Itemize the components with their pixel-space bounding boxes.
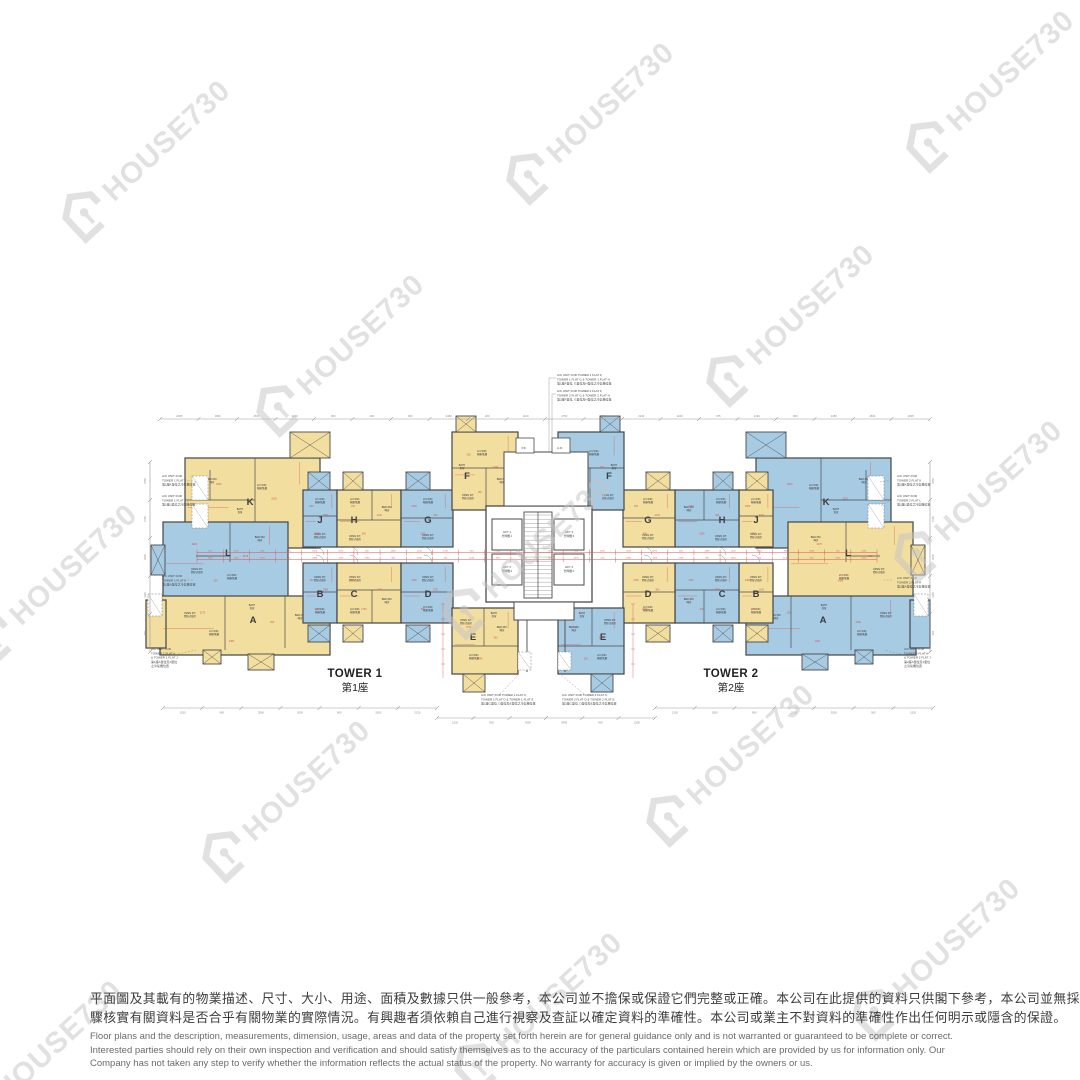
tower-2-unit-E: OPEN KIT.開放式廚房BED RM.睡房LIV./DIN.客廳/飯廳BAT… [558,608,624,692]
svg-text:客廳/飯廳: 客廳/飯廳 [477,452,488,456]
house730-logo-icon [57,185,111,239]
svg-text:K: K [823,497,830,508]
svg-text:C: C [351,589,358,600]
svg-text:客廳/飯廳: 客廳/飯廳 [716,610,727,614]
svg-text:2020: 2020 [861,557,867,559]
tower-2: LIV./DIN.客廳/飯廳BED RM.睡房BATH浴室OPEN KIT.開放… [558,416,930,694]
svg-text:1750: 1750 [443,550,449,552]
svg-text:睡房: 睡房 [258,538,263,542]
svg-text:2480: 2480 [312,557,318,559]
svg-text:第1座C單位, D單位及E單位之冷氣機位置: 第1座C單位, D單位及E單位之冷氣機位置 [481,701,536,706]
svg-text:1500: 1500 [600,550,606,552]
svg-text:900: 900 [337,710,342,714]
svg-text:900: 900 [489,720,494,724]
svg-text:1800: 1800 [869,414,875,418]
house730-watermark: HOUSE730 [57,68,237,240]
svg-text:3500: 3500 [831,710,837,714]
svg-text:1100: 1100 [931,592,935,598]
svg-text:2020: 2020 [271,497,277,500]
tower-1: LIV./DIN.客廳/飯廳BED RM.睡房BATH浴室OPEN KIT.開放… [146,416,518,694]
svg-text:之冷氣機位置: 之冷氣機位置 [151,663,169,668]
svg-text:升降機 4: 升降機 4 [564,569,575,573]
svg-text:1750: 1750 [361,608,367,611]
svg-text:2000: 2000 [931,554,935,560]
svg-text:2480: 2480 [745,579,751,582]
svg-text:開放式廚房: 開放式廚房 [715,537,728,541]
svg-text:3150: 3150 [143,478,147,484]
svg-text:L: L [845,548,851,559]
svg-text:第2座A單位及J單位: 第2座A單位及J單位 [904,659,930,664]
svg-text:900: 900 [143,630,147,635]
house730-watermark-text: HOUSE730 [680,678,821,812]
svg-text:3500: 3500 [258,710,264,714]
tower-1-unit-C: LIV./DIN.客廳/飯廳BED RM.睡房OPEN KIT.開放式廚房248… [337,563,401,642]
svg-text:2340: 2340 [731,557,737,559]
svg-text:200: 200 [370,414,375,418]
svg-text:2130: 2130 [377,514,383,517]
floor-plan-page: LIV./DIN.客廳/飯廳BED RM.睡房BATH浴室OPEN KIT.開放… [0,0,1080,1080]
svg-text:1500: 1500 [712,710,718,714]
svg-text:客廳/飯廳: 客廳/飯廳 [423,500,434,504]
svg-text:浴室: 浴室 [580,614,585,618]
svg-text:3275: 3275 [243,555,249,558]
svg-text:客廳/飯廳: 客廳/飯廳 [315,500,326,504]
svg-text:2020: 2020 [312,550,318,552]
svg-text:D: D [645,589,652,600]
svg-text:1750: 1750 [433,589,439,592]
svg-text:3275: 3275 [200,612,206,615]
svg-text:2130: 2130 [469,557,475,559]
disclaimer-english: Floor plans and the description, measure… [90,1030,1005,1071]
svg-text:2020: 2020 [192,543,198,546]
svg-text:200: 200 [869,555,874,558]
tower-1-unit-G: LIV./DIN.客廳/飯廳OPEN KIT.開放式廚房23401502130G [401,472,453,547]
svg-text:開放式廚房: 開放式廚房 [460,621,473,625]
house730-logo-icon [197,825,251,879]
svg-text:2130: 2130 [688,505,694,508]
svg-text:客廳/飯廳: 客廳/飯廳 [350,500,361,504]
svg-text:B: B [317,589,324,600]
svg-text:2340: 2340 [495,550,501,552]
svg-text:300: 300 [467,453,472,456]
svg-text:1750: 1750 [633,579,639,582]
svg-text:睡房: 睡房 [385,508,390,512]
svg-text:H.R.: H.R. [557,446,562,450]
svg-text:客廳/飯廳: 客廳/飯廳 [716,500,727,504]
svg-text:2480: 2480 [391,550,397,552]
annotation-top_2: A/C UNIT FOR TOWER 2 FLAT F,TOWER 2 FLAT… [557,389,612,402]
svg-text:第2座: 第2座 [718,681,745,694]
svg-text:2020: 2020 [315,532,321,535]
svg-text:LIFT 4: LIFT 4 [565,565,573,569]
tower-1-unit-H: LIV./DIN.客廳/飯廳BED RM.睡房OPEN KIT.開放式廚房150… [337,472,401,547]
svg-text:開放式廚房: 開放式廚房 [462,496,475,500]
house730-watermark: HOUSE730 [901,0,1080,169]
svg-text:睡房: 睡房 [862,480,867,484]
svg-text:睡房: 睡房 [385,600,390,604]
svg-text:F: F [606,471,612,482]
svg-text:3275: 3275 [338,550,344,552]
svg-text:浴室: 浴室 [238,510,243,514]
svg-text:2480: 2480 [626,557,632,559]
svg-text:睡房: 睡房 [298,616,303,620]
svg-text:H: H [719,515,726,526]
svg-text:375: 375 [716,414,721,418]
svg-text:開放式廚房: 開放式廚房 [314,578,327,582]
svg-text:900: 900 [601,414,606,418]
svg-text:200: 200 [287,557,291,559]
svg-text:開放式廚房: 開放式廚房 [422,578,435,582]
svg-text:3275: 3275 [751,532,757,535]
svg-text:第2座C單位, D單位及E單位之冷氣機位置: 第2座C單位, D單位及E單位之冷氣機位置 [562,701,617,706]
house730-watermark-text: HOUSE730 [740,238,881,372]
svg-text:D: D [425,589,432,600]
svg-text:H: H [351,515,358,526]
svg-text:客廳/飯廳: 客廳/飯廳 [350,610,361,614]
svg-text:1750: 1750 [757,550,763,552]
svg-text:900: 900 [362,532,367,535]
svg-text:第1座A單位之冷氣機位置: 第1座A單位之冷氣機位置 [162,582,196,587]
house730-watermark-text: HOUSE730 [928,414,1069,548]
svg-text:900: 900 [331,414,336,418]
svg-text:150: 150 [634,505,639,508]
tower-2-unit-C: LIV./DIN.客廳/飯廳BED RM.睡房OPEN KIT.開放式廚房110… [675,563,739,642]
svg-text:1500: 1500 [699,532,705,535]
svg-text:2480: 2480 [705,550,711,552]
svg-text:E: E [600,632,606,643]
svg-text:2340: 2340 [809,550,815,552]
svg-text:浴室: 浴室 [834,510,839,514]
svg-text:2000: 2000 [297,710,303,714]
svg-text:150: 150 [757,557,761,559]
svg-text:2480: 2480 [831,414,837,418]
svg-text:2130: 2130 [414,710,420,714]
svg-text:開放式廚房: 開放式廚房 [642,536,655,540]
svg-text:1500: 1500 [745,505,751,508]
svg-text:1520: 1520 [452,720,458,724]
annotation-right_k: A/C UNIT FORTOWER 2 FLAT K第2座K單位之冷氣機位置 [897,474,931,487]
tower-2-unit-G: LIV./DIN.客廳/飯廳OPEN KIT.開放式廚房1502130900G [623,472,675,547]
tower-2-unit-J: LIV./DIN.客廳/飯廳OPEN KIT.開放式廚房150020203275… [739,472,773,547]
disclaimer-en-line2: Interested parties should rely on their … [90,1044,1005,1058]
house730-logo-icon [901,115,955,169]
svg-text:900: 900 [598,720,603,724]
svg-text:2480: 2480 [350,579,356,582]
svg-text:TOWER 1: TOWER 1 [328,668,383,680]
annotation-bottom_2: A/C UNIT FOR TOWER 2 FLAT C,TOWER 2 FLAT… [562,693,617,706]
house730-watermark: HOUSE730 [0,492,144,664]
svg-text:300: 300 [391,557,395,559]
svg-text:浴室: 浴室 [492,614,497,618]
svg-text:900: 900 [871,710,876,714]
svg-text:2750: 2750 [143,516,147,522]
svg-text:開放式廚房: 開放式廚房 [642,578,655,582]
svg-text:1100: 1100 [759,589,765,592]
house730-logo-icon [501,147,555,201]
svg-text:2005: 2005 [176,414,182,418]
svg-text:150: 150 [444,557,448,559]
svg-text:300: 300 [655,589,660,592]
svg-text:2020: 2020 [234,557,240,559]
tower-2-unit-D: LIV./DIN.客廳/飯廳OPEN KIT.開放式廚房17503002340D [623,563,675,642]
svg-text:2130: 2130 [754,414,760,418]
annotation-top_1: A/C UNIT FOR TOWER 1 FLAT F,TOWER 1 FLAT… [557,373,612,386]
svg-text:浴室: 浴室 [250,606,255,610]
svg-text:1100: 1100 [652,557,657,559]
svg-text:1750: 1750 [561,414,567,418]
house730-watermark: HOUSE730 [641,672,821,844]
svg-text:2020: 2020 [787,483,793,486]
svg-text:客廳/飯廳: 客廳/飯廳 [809,486,820,490]
svg-text:1100: 1100 [815,640,821,643]
floor-plan-svg: LIV./DIN.客廳/飯廳BED RM.睡房BATH浴室OPEN KIT.開放… [0,0,1080,1080]
svg-text:150: 150 [433,514,438,517]
svg-text:2480: 2480 [229,640,235,643]
tower-1-unit-B: LIV./DIN.客廳/飯廳OPEN KIT.開放式廚房20024801100B [303,563,337,642]
svg-text:開放式廚房: 開放式廚房 [873,570,886,574]
svg-text:900: 900 [643,532,648,535]
svg-text:1520: 1520 [180,710,186,714]
svg-text:1100: 1100 [338,557,343,559]
annotation-right_l: A/C UNIT FORTOWER 2 FLAT L第2座L單位之冷氣機位置 [897,494,930,507]
svg-text:G: G [644,515,651,526]
svg-text:客廳/飯廳: 客廳/飯廳 [597,656,608,660]
svg-text:P.D.: P.D. [522,446,527,450]
svg-text:1100: 1100 [315,608,321,611]
svg-text:第1座A單位及J單位: 第1座A單位及J單位 [151,659,177,664]
house730-logo-icon [251,379,305,433]
svg-text:200: 200 [679,550,683,552]
house730-watermark-text: HOUSE730 [236,714,377,848]
svg-text:2340: 2340 [493,466,499,469]
svg-text:3275: 3275 [260,557,266,559]
svg-text:浴室: 浴室 [822,606,827,610]
svg-text:開放式廚房: 開放式廚房 [191,570,204,574]
svg-text:2130: 2130 [672,710,678,714]
svg-text:浴室: 浴室 [460,466,465,470]
svg-text:300: 300 [705,557,709,559]
svg-text:1100: 1100 [731,550,736,552]
svg-text:200: 200 [485,414,490,418]
svg-text:J: J [317,515,322,526]
svg-text:300: 300 [494,636,499,639]
house730-watermark-text: HOUSE730 [886,872,1027,1006]
svg-text:2020: 2020 [626,550,632,552]
svg-text:3275: 3275 [842,497,848,500]
svg-text:200: 200 [310,579,315,582]
svg-text:2340: 2340 [417,557,423,559]
svg-text:150: 150 [584,657,589,660]
svg-text:客廳/飯廳: 客廳/飯廳 [857,632,868,636]
svg-text:900: 900 [310,505,315,508]
svg-text:客廳/飯廳: 客廳/飯廳 [643,500,654,504]
svg-text:開放式廚房: 開放式廚房 [715,578,728,582]
svg-text:開放式廚房: 開放式廚房 [750,535,763,539]
svg-text:開放式廚房: 開放式廚房 [184,614,197,618]
svg-text:第2座L單位之冷氣機位置: 第2座L單位之冷氣機位置 [897,502,930,507]
svg-text:3275: 3275 [817,543,823,546]
svg-text:1750: 1750 [751,608,757,611]
svg-text:2340: 2340 [411,505,417,508]
svg-text:1500: 1500 [216,483,222,486]
house730-watermark-text: HOUSE730 [96,74,237,208]
svg-text:1750: 1750 [365,557,371,559]
house730-watermark-text: HOUSE730 [540,36,681,170]
svg-text:3275: 3275 [574,557,580,559]
svg-text:第1座K單位之冷氣機位置: 第1座K單位之冷氣機位置 [162,482,196,487]
svg-text:開放式廚房: 開放式廚房 [314,535,327,539]
svg-text:2020: 2020 [759,514,765,517]
svg-text:1500: 1500 [208,557,214,559]
disclaimer: 平面圖及其載有的物業描述、尺寸、大小、用途、面積及數據只供一般參考，本公司並不擔… [90,989,1005,1071]
svg-text:1800: 1800 [215,414,221,418]
svg-text:睡房: 睡房 [814,538,819,542]
svg-text:2340: 2340 [477,657,483,660]
house730-watermark: HOUSE730 [197,708,377,880]
disclaimer-en-line1: Floor plans and the description, measure… [90,1030,1005,1044]
svg-text:2240: 2240 [677,414,683,418]
disclaimer-zh-line1: 平面圖及其載有的物業描述、尺寸、大小、用途、面積及數據只供一般參考，本公司並不擔… [90,989,1005,1008]
svg-text:TOWER 2: TOWER 2 [704,668,759,680]
svg-text:1500: 1500 [375,710,381,714]
svg-text:2480: 2480 [856,621,862,624]
svg-text:300: 300 [700,608,705,611]
svg-text:2480: 2480 [323,589,329,592]
svg-text:150: 150 [351,505,356,508]
svg-text:3495: 3495 [561,720,567,724]
svg-text:900: 900 [408,414,413,418]
svg-text:1750: 1750 [678,557,684,559]
svg-text:2005: 2005 [908,414,914,418]
svg-text:睡房: 睡房 [500,628,505,632]
svg-text:200: 200 [214,579,219,582]
svg-text:開放式廚房: 開放式廚房 [750,578,763,582]
disclaimer-en-line3: Company has not taken any step to verify… [90,1057,1005,1071]
svg-text:900: 900 [752,710,757,714]
svg-text:1100: 1100 [143,592,147,598]
svg-text:第2座F單位, G單位及H單位之冷氣機位置: 第2座F單位, G單位及H單位之冷氣機位置 [557,397,612,402]
annotation-bottom_1: A/C UNIT FOR TOWER 1 FLAT C,TOWER 1 FLAT… [481,693,536,706]
house730-watermark-text: HOUSE730 [3,498,144,632]
svg-text:1100: 1100 [688,579,694,582]
tower-2-unit-B: LIV./DIN.客廳/飯廳OPEN KIT.開放式廚房248011001750… [739,563,773,642]
svg-text:200: 200 [601,557,605,559]
svg-text:第2座K單位之冷氣機位置: 第2座K單位之冷氣機位置 [897,482,931,487]
svg-text:第1座F單位, G單位及H單位之冷氣機位置: 第1座F單位, G單位及H單位之冷氣機位置 [557,381,612,386]
svg-text:A: A [250,615,257,626]
house730-watermark: HOUSE730 [501,30,681,202]
svg-text:客廳/飯廳: 客廳/飯廳 [257,486,268,490]
svg-text:900: 900 [931,630,935,635]
svg-text:睡房: 睡房 [687,508,692,512]
svg-text:1100: 1100 [377,589,383,592]
tower-1-unit-E: OPEN KIT.開放式廚房BED RM.睡房LIV./DIN.客廳/飯廳BAT… [452,608,518,692]
svg-text:2130: 2130 [861,550,867,552]
svg-text:1100: 1100 [411,579,417,582]
svg-text:客廳/飯廳: 客廳/飯廳 [589,452,600,456]
house730-watermark-text: HOUSE730 [290,268,431,402]
svg-text:之冷氣機位置: 之冷氣機位置 [904,663,922,668]
disclaimer-zh-line2: 驟核實有關資料是否合乎有關物業的實際情況。有興趣者須依賴自己進行視察及查証以確定… [90,1008,1005,1027]
house730-logo-icon [701,349,755,403]
svg-text:2130: 2130 [638,414,644,418]
svg-text:2480: 2480 [446,414,452,418]
svg-text:1500: 1500 [286,550,292,552]
svg-text:200: 200 [787,612,792,615]
svg-text:900: 900 [793,414,798,418]
svg-text:2480: 2480 [838,579,844,582]
house730-watermark: HOUSE730 [251,262,431,434]
svg-text:K: K [247,497,254,508]
tower-2-unit-H: LIV./DIN.客廳/飯廳BED RM.睡房OPEN KIT.開放式廚房213… [675,472,739,547]
svg-text:1100: 1100 [417,550,422,552]
svg-text:1500: 1500 [835,557,841,559]
svg-text:300: 300 [470,550,474,552]
svg-text:LIFT 1: LIFT 1 [503,530,511,534]
svg-text:J: J [753,515,758,526]
svg-text:睡房: 睡房 [210,480,215,484]
svg-text:浴室: 浴室 [612,466,617,470]
svg-text:G: G [424,515,431,526]
svg-text:2130: 2130 [655,514,661,517]
svg-text:開放式廚房: 開放式廚房 [880,614,893,618]
svg-text:睡房: 睡房 [687,600,692,604]
svg-text:L: L [225,548,231,559]
svg-text:客廳/飯廳: 客廳/飯廳 [751,500,762,504]
svg-text:第1座: 第1座 [342,681,369,694]
watermark-layer: HOUSE730HOUSE730HOUSE730HOUSE730HOUSE730… [0,0,1080,1080]
svg-text:C: C [719,589,726,600]
svg-text:A: A [820,615,827,626]
svg-text:開放式廚房: 開放式廚房 [604,621,617,625]
svg-text:1500: 1500 [634,720,640,724]
svg-text:1500: 1500 [323,514,329,517]
svg-text:客廳/飯廳: 客廳/飯廳 [209,632,220,636]
svg-text:睡房: 睡房 [774,616,779,620]
svg-text:2130: 2130 [234,550,240,552]
house730-watermark: HOUSE730 [701,232,881,404]
svg-text:F: F [464,471,470,482]
svg-text:2130: 2130 [420,532,426,535]
svg-text:3500: 3500 [525,720,531,724]
svg-text:1520: 1520 [910,710,916,714]
svg-text:開放式廚房: 開放式廚房 [349,537,362,541]
svg-text:B: B [753,589,760,600]
svg-text:客廳/飯廳: 客廳/飯廳 [227,576,238,580]
svg-text:升降機 1: 升降機 1 [502,534,513,538]
svg-text:300: 300 [421,608,426,611]
svg-text:3150: 3150 [931,478,935,484]
annotation-right_aj: A/C UNIT FORTOWER 2 FLAT A& TOWER 2 FLAT… [904,647,931,668]
svg-text:2340: 2340 [642,608,648,611]
house730-logo-icon [641,789,695,843]
tower-1-unit-J: LIV./DIN.客廳/飯廳OPEN KIT.開放式廚房90015002020J [303,472,337,547]
svg-text:2000: 2000 [143,554,147,560]
svg-text:第2座A單位之冷氣機位置: 第2座A單位之冷氣機位置 [897,584,931,589]
svg-text:200: 200 [270,621,275,624]
svg-text:900: 900 [219,710,224,714]
svg-text:第1座L單位之冷氣機位置: 第1座L單位之冷氣機位置 [162,502,195,507]
svg-text:200: 200 [365,550,369,552]
house730-watermark-text: HOUSE730 [940,4,1080,138]
svg-text:300: 300 [573,626,578,629]
svg-text:3275: 3275 [652,550,658,552]
svg-text:150: 150 [600,466,605,469]
svg-text:1100: 1100 [523,414,529,418]
svg-text:開放式廚房: 開放式廚房 [422,536,435,540]
svg-text:2130: 2130 [783,557,789,559]
svg-text:150: 150 [478,491,483,494]
